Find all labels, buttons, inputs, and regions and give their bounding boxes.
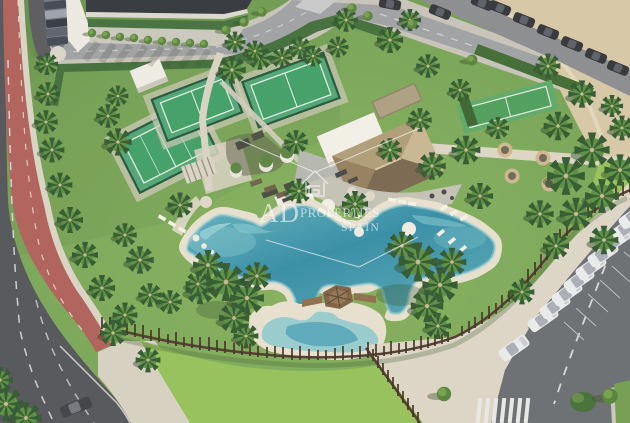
svg-text:AD: AD — [259, 198, 300, 228]
svg-text:PROPERTIES: PROPERTIES — [300, 205, 380, 220]
svg-text:SPAIN: SPAIN — [341, 222, 380, 234]
